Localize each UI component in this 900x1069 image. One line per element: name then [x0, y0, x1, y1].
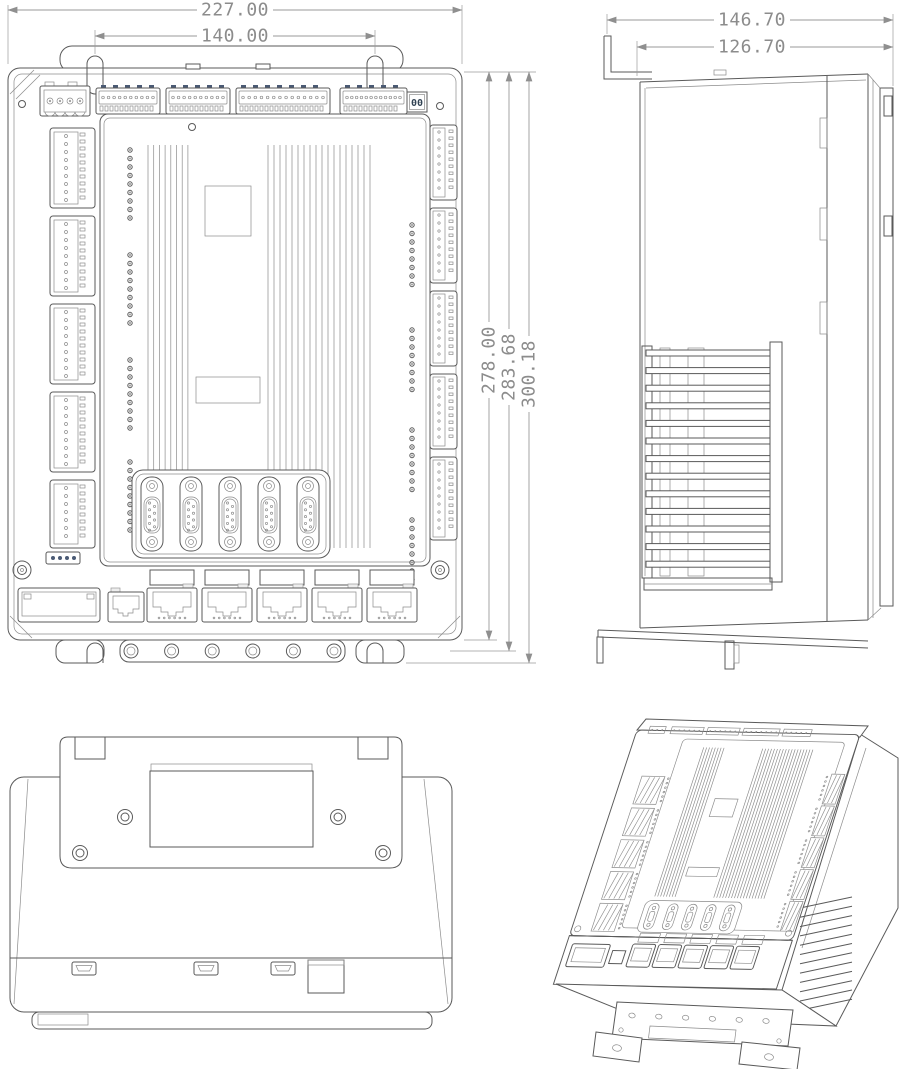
front-ethernet-ports [147, 570, 417, 622]
front-view: 00 [8, 0, 540, 663]
svg-text:146.70: 146.70 [718, 10, 786, 31]
front-aux-connector [46, 552, 80, 564]
technical-drawing-page: 00 [0, 0, 900, 1069]
side-bottom-bracket [597, 630, 868, 669]
svg-text:283.68: 283.68 [499, 333, 520, 401]
front-bottom-flange [56, 640, 404, 663]
bottom-mounting-plate [60, 737, 402, 868]
svg-text:278.00: 278.00 [479, 326, 500, 394]
dim-side-overall-depth: 146.70 [714, 10, 790, 31]
front-top-terminal-strips [96, 85, 407, 114]
front-small-ethernet-port [108, 588, 144, 622]
svg-text:126.70: 126.70 [718, 37, 786, 58]
side-heatsink [642, 342, 782, 590]
front-wide-connector [18, 588, 100, 622]
dim-front-overall-width: 227.00 [197, 0, 273, 21]
dim-side-body-depth: 126.70 [714, 37, 790, 58]
bottom-view [10, 737, 452, 1029]
front-address-display: 00 [407, 92, 427, 112]
svg-text:140.00: 140.00 [201, 26, 269, 47]
svg-text:300.18: 300.18 [519, 340, 540, 408]
dim-front-mount-spacing: 140.00 [197, 26, 273, 47]
technical-drawing-canvas: 00 [0, 0, 900, 1069]
side-heatsink-slats [646, 350, 770, 567]
isometric-view [553, 719, 898, 1069]
dim-front-body-height: 278.00 [479, 322, 500, 398]
side-top-bracket [604, 36, 726, 79]
dim-front-mid-height: 283.68 [499, 329, 520, 405]
front-left-connectors [50, 128, 95, 548]
iso-right-ear [739, 1042, 800, 1069]
address-display-value: 00 [411, 98, 423, 109]
front-right-connectors [430, 125, 457, 540]
svg-text:227.00: 227.00 [201, 0, 269, 21]
side-view: 146.70 126.70 [597, 10, 893, 670]
dim-front-overall-height: 300.18 [519, 336, 540, 412]
